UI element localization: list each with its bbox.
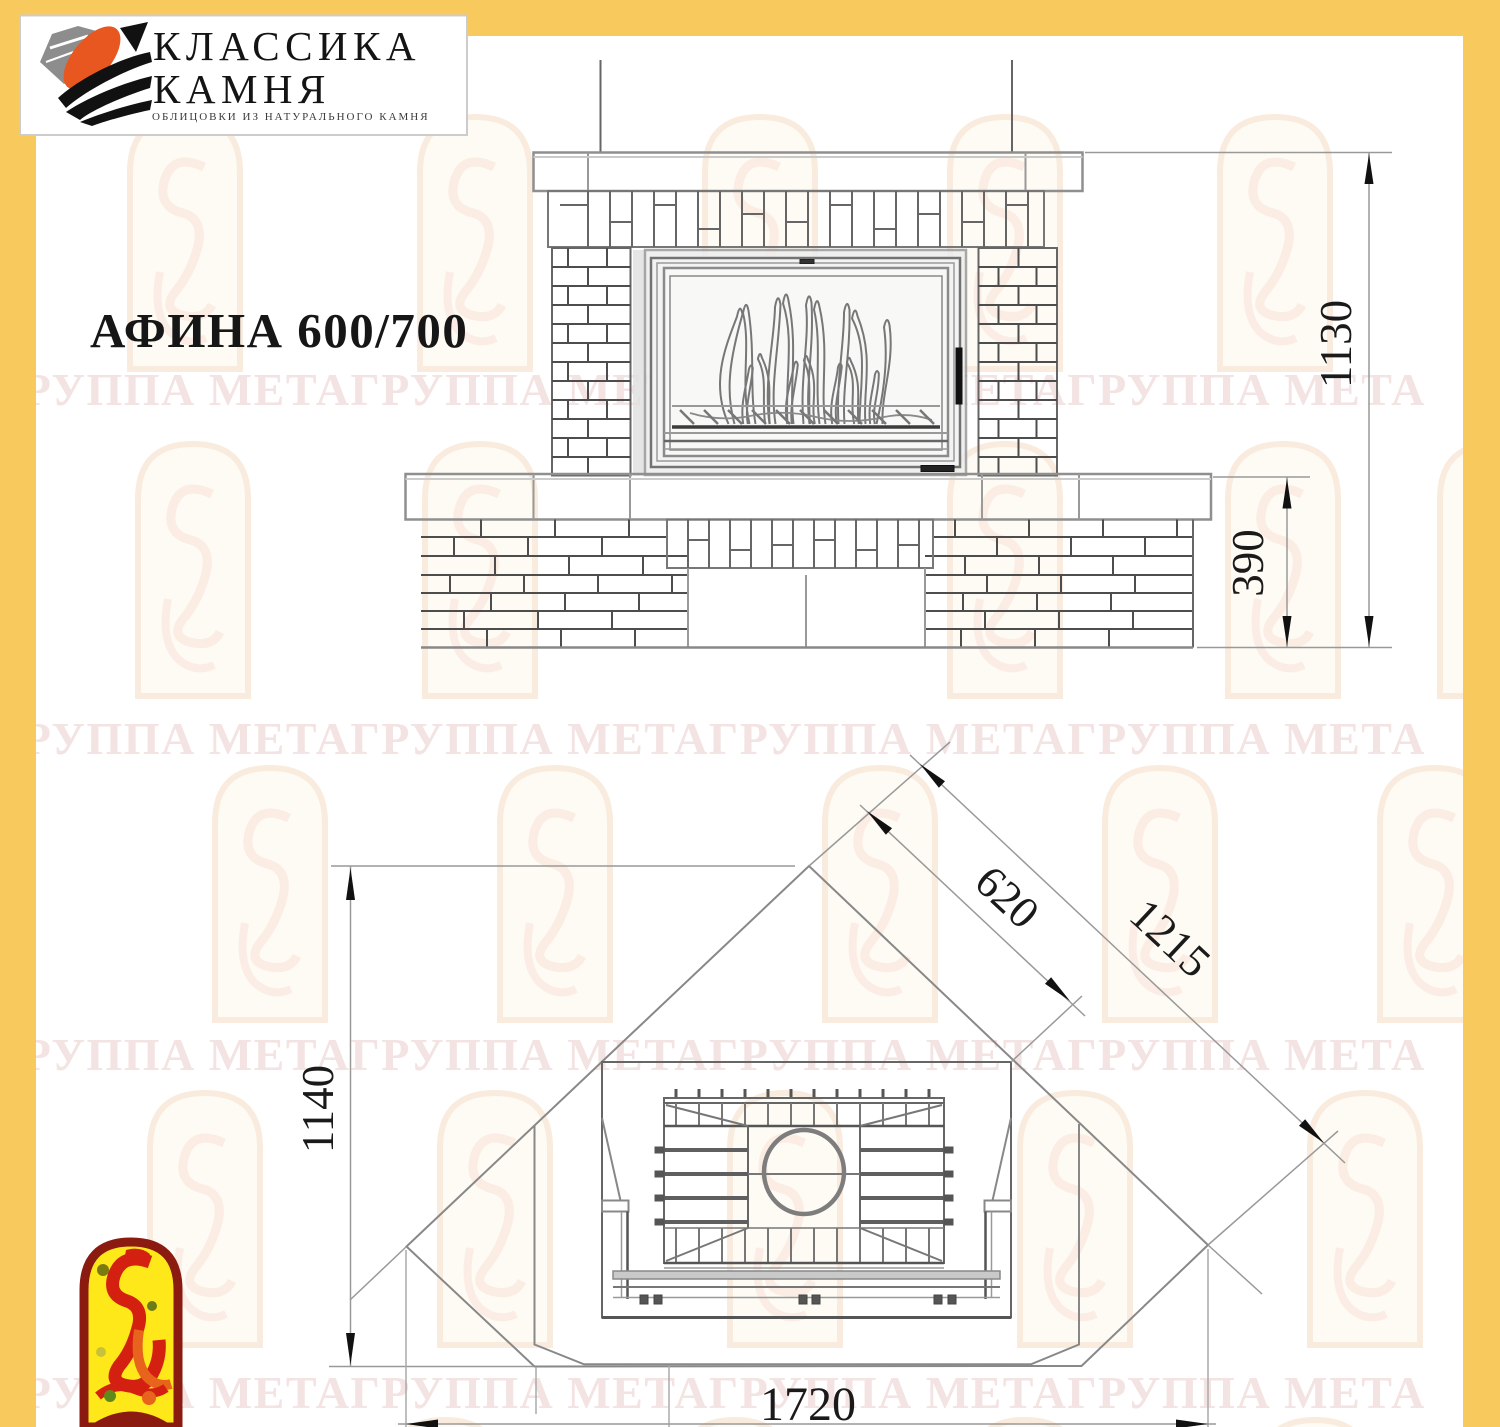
svg-text:КАМНЯ: КАМНЯ [153,66,331,112]
svg-text:ГРУППА МЕТАГРУППА МЕТАГРУППА М: ГРУППА МЕТАГРУППА МЕТАГРУППА МЕТАГРУППА … [0,713,1426,764]
svg-text:ГРУППА МЕТАГРУППА МЕТАГРУППА М: ГРУППА МЕТАГРУППА МЕТАГРУППА МЕТАГРУППА … [0,1367,1426,1418]
svg-text:АФИНА 600/700: АФИНА 600/700 [90,303,468,358]
svg-text:ГРУППА МЕТАГРУППА МЕТАГРУППА М: ГРУППА МЕТАГРУППА МЕТАГРУППА МЕТАГРУППА … [0,1029,1426,1080]
svg-text:КЛАССИКА: КЛАССИКА [153,23,421,69]
svg-text:1140: 1140 [293,1065,343,1153]
svg-text:ОБЛИЦОВКИ ИЗ НАТУРАЛЬНОГО КАМН: ОБЛИЦОВКИ ИЗ НАТУРАЛЬНОГО КАМНЯ [152,111,430,123]
svg-text:390: 390 [1223,529,1273,597]
svg-text:1720: 1720 [760,1378,856,1427]
svg-text:1130: 1130 [1311,300,1361,388]
